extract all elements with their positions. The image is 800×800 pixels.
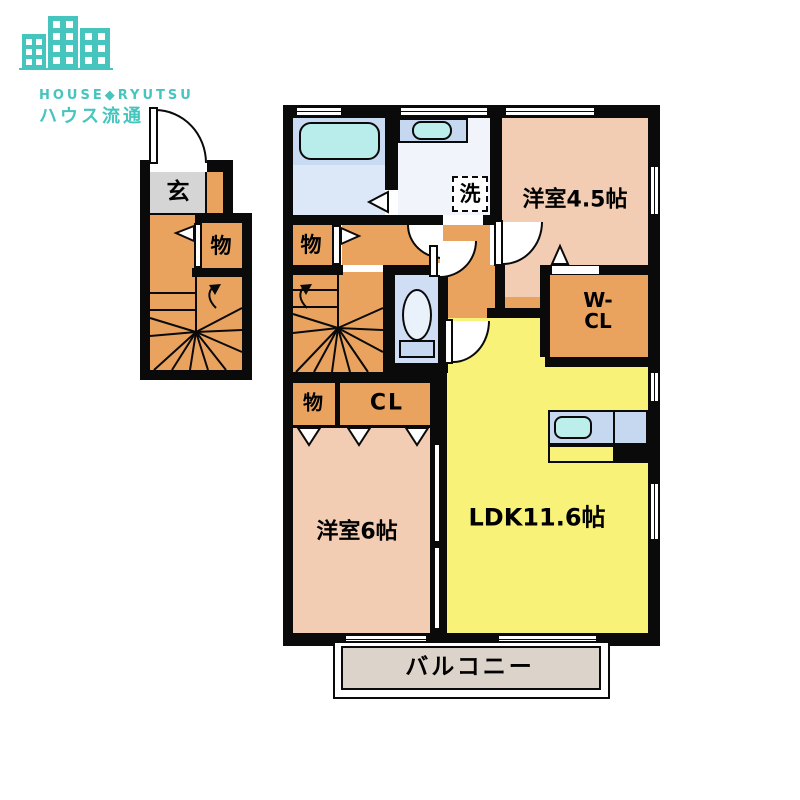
- bedroom1-label: 洋室4.5帖: [523, 188, 628, 211]
- sliding-partition-lower: [433, 546, 441, 630]
- bathroom-door-opening: [385, 190, 398, 215]
- kitchen-counter-divider: [613, 410, 615, 445]
- entrance-side-floor: [207, 170, 223, 215]
- kitchen-counter-edge: [548, 445, 615, 463]
- logo-buildings-icon: [18, 12, 148, 74]
- window: [505, 107, 595, 116]
- kitchen-sink: [554, 416, 592, 439]
- brand-logo: HOUSE◆RYUTSU ハウス流通: [18, 12, 168, 122]
- brand-name-jp: ハウス流通: [39, 102, 144, 128]
- wic-label: W- CL: [583, 290, 612, 332]
- bedroom2-label: 洋室6帖: [316, 520, 397, 543]
- wic-label-line2: CL: [583, 311, 612, 332]
- toilet-door-leaf: [429, 245, 438, 277]
- stairs-2f-floor: [293, 272, 383, 373]
- window: [650, 483, 659, 540]
- wall: [283, 372, 447, 383]
- bathroom-floor: [293, 165, 385, 215]
- wall: [293, 425, 430, 428]
- bedroom1-entry-floor: [502, 265, 540, 297]
- washroom-door-opening: [443, 215, 483, 225]
- sliding-partition-upper: [433, 443, 441, 543]
- floorplan-canvas: HOUSE◆RYUTSU ハウス流通: [0, 0, 800, 800]
- toilet-tank: [399, 340, 435, 358]
- storage-1f-door-pillar: [194, 223, 202, 268]
- toilet-bowl: [402, 289, 432, 341]
- storage-1f-label: 物: [211, 235, 232, 257]
- wic-label-line1: W-: [583, 290, 612, 311]
- hall-storage-door-pillar: [332, 225, 341, 265]
- bathtub: [299, 122, 380, 160]
- vanity-sink: [412, 121, 452, 140]
- entrance-door-arc: [155, 109, 207, 163]
- wall: [140, 370, 252, 380]
- kitchen-wall-stub: [615, 445, 648, 463]
- wic-door-opening: [552, 266, 599, 274]
- window: [650, 372, 659, 402]
- wall: [283, 265, 343, 275]
- wall: [383, 272, 395, 373]
- window: [650, 166, 659, 215]
- window: [296, 107, 342, 116]
- window: [400, 107, 488, 116]
- brand-name-en: HOUSE◆RYUTSU: [39, 88, 194, 103]
- wall: [335, 383, 340, 425]
- wall: [242, 213, 252, 380]
- ldk-floor-east: [550, 367, 648, 633]
- entrance-label: 玄: [167, 180, 190, 204]
- balcony-label: バルコニー: [405, 655, 535, 679]
- wall: [540, 265, 550, 357]
- ldk-door-leaf: [444, 319, 453, 364]
- wall: [223, 160, 233, 217]
- wall: [140, 160, 150, 380]
- entrance-door-leaf: [149, 107, 158, 164]
- closet-label: CL: [370, 391, 404, 414]
- wall: [205, 170, 207, 215]
- wall: [150, 213, 207, 215]
- ldk-floor-west: [447, 318, 550, 633]
- ldk-label: LDK11.6帖: [468, 505, 605, 530]
- bedroom1-door-leaf: [494, 220, 503, 266]
- hall-storage-label: 物: [301, 234, 322, 256]
- wall: [490, 105, 502, 225]
- laundry-label: 洗: [460, 183, 481, 205]
- wall: [545, 357, 660, 367]
- closet-storage-label: 物: [303, 393, 323, 414]
- wall: [192, 268, 252, 277]
